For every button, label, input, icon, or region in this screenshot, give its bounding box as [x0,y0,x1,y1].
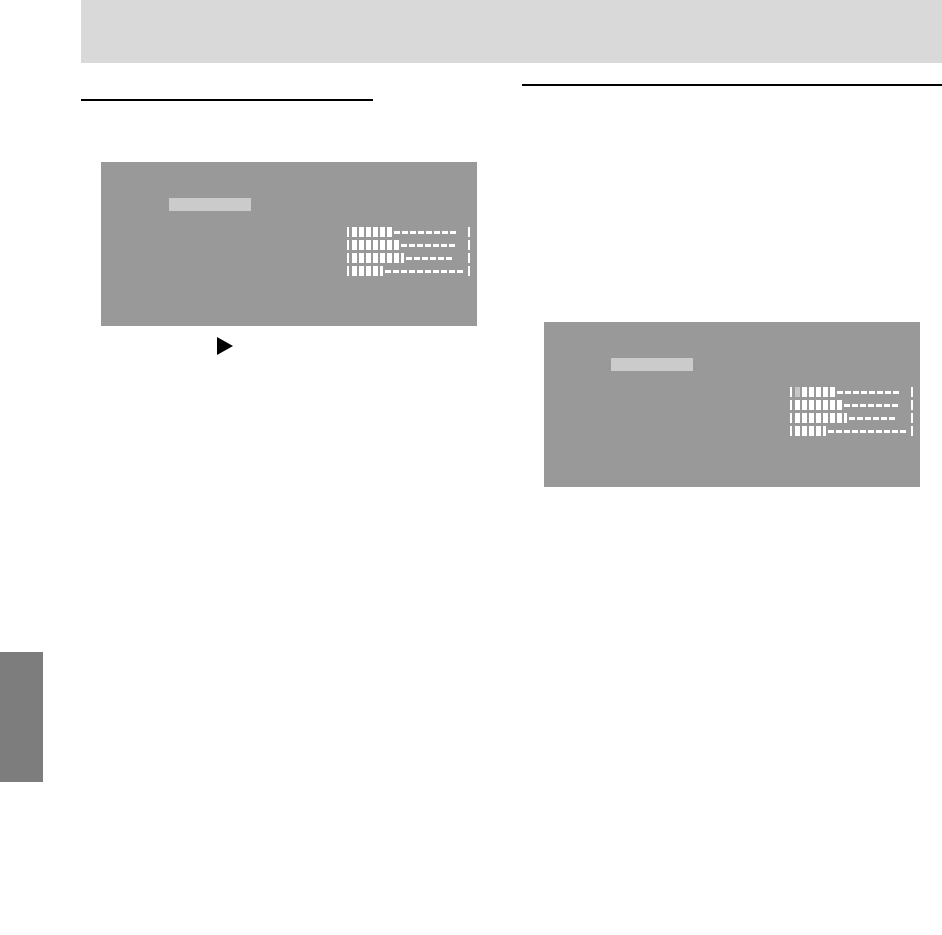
slider-dash [900,430,906,433]
slider-filled-block [359,240,364,250]
osd-screen-figure-right [544,322,920,487]
slider-dash [393,270,399,273]
slider-filled-block [823,400,828,410]
slider-filled-block [795,400,800,410]
osd-slider-row [790,387,913,397]
slider-dash [457,270,463,273]
slider-dash [434,231,440,234]
osd-screen-figure-left [101,162,477,326]
slider-dash [410,231,416,234]
slider-end-pipe [790,426,792,436]
slider-dash [873,417,879,420]
page-header-band [81,0,942,63]
slider-filled-block [380,227,385,237]
slider-dash [881,417,887,420]
slider-filled-block [837,400,842,410]
osd-slider-row [790,426,913,436]
slider-end-pipe [468,240,470,250]
right-column-rule [522,84,942,86]
slider-dash [853,391,859,394]
slider-dash [409,270,415,273]
slider-dash [857,417,863,420]
slider-half-block [401,253,404,263]
slider-dash [876,404,882,407]
slider-filled-block [816,426,821,436]
slider-end-pipe [347,227,349,237]
slider-dash [426,231,432,234]
slider-filled-block [380,240,385,250]
slider-dash [828,430,834,433]
slider-end-pipe [790,400,792,410]
slider-half-block [823,426,826,436]
slider-filled-block [352,253,357,263]
slider-dash [417,244,423,247]
slider-dash [889,417,895,420]
slider-filled-block [373,266,378,276]
slider-end-pipe [911,400,913,410]
slider-dash [852,404,858,407]
slider-filled-block [359,266,364,276]
slider-filled-block [359,253,364,263]
slider-dash [430,257,436,260]
slider-filled-block [823,387,828,397]
slider-dash [860,430,866,433]
slider-dash [441,244,447,247]
slider-filled-block [366,227,371,237]
left-column-rule [81,99,373,101]
slider-filled-block [830,413,835,423]
slider-dash [893,391,899,394]
slider-dash [884,430,890,433]
slider-dash [401,244,407,247]
slider-filled-block [795,387,800,397]
slider-dash [442,231,448,234]
osd-slider-bars [790,387,913,436]
slider-half-block [844,413,847,423]
slider-filled-block [809,426,814,436]
slider-filled-block [795,426,800,436]
slider-end-pipe [790,413,792,423]
slider-dash [417,270,423,273]
slider-filled-block [352,266,357,276]
slider-track [352,240,457,250]
slider-dash [449,270,455,273]
slider-dash [876,430,882,433]
slider-half-block [380,266,383,276]
slider-filled-block [394,253,399,263]
slider-dash [438,257,444,260]
osd-menu-title-placeholder [169,198,251,211]
slider-end-pipe [347,266,349,276]
slider-end-pipe [468,227,470,237]
slider-end-pipe [911,387,913,397]
slider-dash [885,391,891,394]
slider-filled-block [795,413,800,423]
slider-dash [402,231,408,234]
slider-end-pipe [468,266,470,276]
slider-end-pipe [347,253,349,263]
slider-dash [868,430,874,433]
slider-dash [861,391,867,394]
slider-dash [406,257,412,260]
slider-filled-block [837,413,842,423]
slider-filled-block [809,413,814,423]
slider-filled-block [802,413,807,423]
slider-dash [394,231,400,234]
slider-filled-block [816,413,821,423]
slider-dash [401,270,407,273]
slider-filled-block [352,240,357,250]
manual-page [0,0,942,935]
slider-dash [409,244,415,247]
slider-track [795,413,897,423]
slider-filled-block [373,227,378,237]
slider-dash [844,430,850,433]
slider-dash [860,404,866,407]
slider-dash [869,391,875,394]
slider-dash [849,417,855,420]
slider-track [795,400,900,410]
slider-dash [868,404,874,407]
slider-dash [877,391,883,394]
slider-filled-block [823,413,828,423]
osd-slider-row [790,400,913,410]
slider-dash [837,391,843,394]
osd-slider-row [347,266,470,276]
osd-slider-row [347,240,470,250]
slider-filled-block [802,387,807,397]
slider-track [795,387,901,397]
slider-dash [446,257,452,260]
osd-slider-bars [347,227,470,276]
slider-dash [892,430,898,433]
slider-dash [450,231,456,234]
slider-filled-block [387,240,392,250]
slider-dash [836,430,842,433]
slider-filled-block [352,227,357,237]
slider-dash [845,391,851,394]
slider-filled-block [366,253,371,263]
osd-slider-row [790,413,913,423]
slider-dash [852,430,858,433]
slider-filled-block [830,387,835,397]
slider-dash [441,270,447,273]
slider-filled-block [802,400,807,410]
slider-dash [433,270,439,273]
slider-filled-block [359,227,364,237]
step-arrow-icon [217,337,233,355]
slider-filled-block [373,253,378,263]
page-edge-tab [0,652,43,782]
slider-filled-block [809,387,814,397]
slider-filled-block [809,400,814,410]
slider-filled-block [830,400,835,410]
slider-filled-block [394,240,399,250]
slider-dash [865,417,871,420]
slider-track [795,426,908,436]
slider-filled-block [802,426,807,436]
slider-filled-block [366,266,371,276]
slider-filled-block [816,400,821,410]
osd-slider-row [347,227,470,237]
osd-slider-row [347,253,470,263]
slider-end-pipe [347,240,349,250]
slider-end-pipe [468,253,470,263]
slider-filled-block [387,253,392,263]
slider-filled-block [380,253,385,263]
slider-dash [449,244,455,247]
slider-track [352,253,454,263]
slider-filled-block [373,240,378,250]
slider-dash [385,270,391,273]
slider-end-pipe [911,413,913,423]
slider-dash [422,257,428,260]
slider-dash [433,244,439,247]
slider-dash [418,231,424,234]
slider-filled-block [366,240,371,250]
slider-track [352,227,458,237]
slider-dash [892,404,898,407]
slider-dash [884,404,890,407]
slider-filled-block [816,387,821,397]
slider-dash [414,257,420,260]
slider-end-pipe [790,387,792,397]
slider-dash [425,244,431,247]
slider-dash [844,404,850,407]
slider-track [352,266,465,276]
slider-dash [425,270,431,273]
slider-filled-block [387,227,392,237]
osd-menu-title-placeholder [611,358,693,371]
slider-end-pipe [911,426,913,436]
